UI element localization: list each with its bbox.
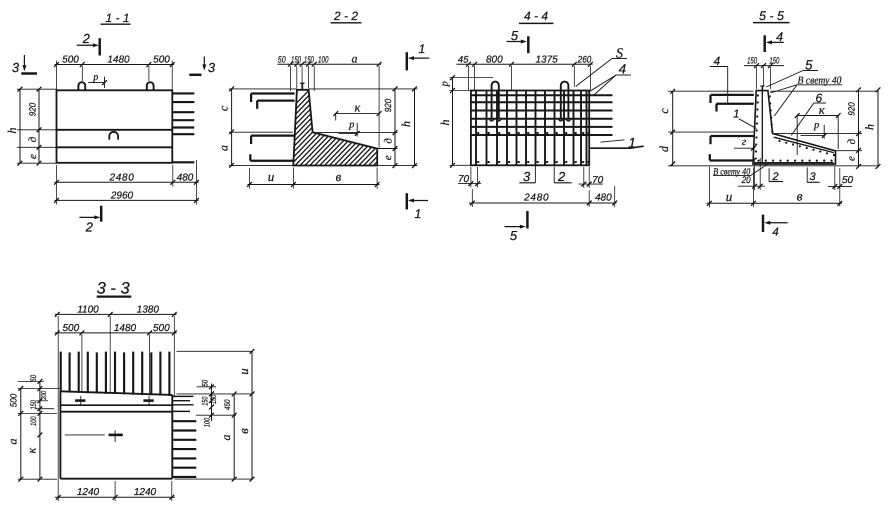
svg-text:480: 480 (595, 193, 612, 204)
svg-text:3: 3 (523, 169, 531, 184)
svg-text:150: 150 (769, 56, 779, 66)
svg-text:100: 100 (29, 416, 38, 426)
svg-text:500: 500 (153, 323, 170, 334)
svg-text:50: 50 (201, 379, 210, 386)
svg-text:к: к (25, 447, 39, 453)
svg-text:2960: 2960 (110, 191, 134, 202)
svg-text:c: c (657, 108, 671, 114)
svg-text:20: 20 (741, 175, 751, 186)
svg-text:в: в (236, 428, 251, 434)
svg-text:д: д (27, 136, 39, 142)
svg-text:S: S (616, 47, 623, 62)
svg-text:500: 500 (9, 394, 19, 408)
svg-text:2480: 2480 (108, 172, 134, 183)
svg-text:d: d (657, 145, 671, 152)
svg-text:2: 2 (85, 220, 94, 235)
svg-text:c: c (217, 105, 231, 111)
svg-text:a: a (5, 439, 19, 445)
svg-text:и: и (236, 368, 251, 375)
svg-text:200: 200 (39, 391, 48, 401)
svg-text:920: 920 (28, 103, 38, 117)
svg-text:260: 260 (577, 55, 592, 66)
svg-text:1100: 1100 (77, 304, 99, 315)
svg-text:2480: 2480 (523, 193, 549, 204)
svg-text:е: е (845, 156, 857, 161)
svg-text:1375: 1375 (535, 55, 558, 66)
svg-text:50: 50 (278, 54, 286, 64)
svg-text:1480: 1480 (114, 323, 137, 334)
svg-text:1: 1 (628, 134, 636, 150)
svg-text:е: е (27, 154, 39, 159)
svg-text:h: h (862, 124, 876, 130)
svg-text:450: 450 (223, 399, 232, 410)
svg-text:3: 3 (208, 60, 216, 75)
svg-text:2: 2 (82, 31, 91, 46)
svg-text:1: 1 (733, 108, 739, 120)
svg-text:4: 4 (772, 227, 778, 239)
svg-text:1240: 1240 (134, 487, 157, 498)
svg-text:500: 500 (62, 323, 79, 334)
svg-text:в: в (336, 169, 342, 184)
svg-text:1480: 1480 (107, 55, 130, 66)
svg-text:д: д (383, 138, 395, 144)
svg-text:5: 5 (511, 28, 519, 43)
svg-text:920: 920 (383, 99, 393, 113)
svg-text:и: и (726, 189, 733, 204)
svg-text:50: 50 (29, 374, 38, 381)
svg-text:150: 150 (29, 400, 38, 410)
svg-text:500: 500 (62, 55, 79, 66)
svg-text:г: г (742, 136, 747, 148)
svg-text:h: h (438, 120, 452, 126)
svg-text:р: р (348, 120, 354, 131)
svg-text:150: 150 (304, 54, 314, 64)
svg-text:4: 4 (619, 62, 627, 77)
svg-text:5: 5 (510, 228, 518, 243)
svg-text:р: р (813, 120, 819, 131)
svg-text:150: 150 (209, 394, 218, 404)
svg-text:1380: 1380 (137, 304, 160, 315)
svg-text:д: д (846, 138, 858, 144)
svg-text:1 - 1: 1 - 1 (105, 11, 129, 25)
svg-text:2: 2 (557, 169, 566, 184)
svg-text:a: a (217, 145, 231, 151)
svg-text:3: 3 (12, 60, 20, 75)
svg-text:в: в (797, 188, 803, 203)
svg-text:50: 50 (842, 175, 854, 186)
svg-text:и: и (268, 169, 275, 184)
svg-text:480: 480 (177, 172, 194, 183)
svg-text:150: 150 (747, 56, 757, 66)
svg-text:1240: 1240 (77, 487, 100, 498)
svg-text:150: 150 (291, 54, 301, 64)
svg-text:800: 800 (486, 55, 503, 66)
svg-text:р: р (92, 72, 98, 83)
svg-text:4: 4 (714, 54, 721, 68)
svg-text:1: 1 (414, 207, 421, 221)
svg-text:a: a (352, 51, 358, 65)
svg-text:3: 3 (810, 171, 817, 183)
svg-text:3 - 3: 3 - 3 (97, 280, 131, 298)
svg-text:h: h (399, 121, 413, 127)
svg-text:a: a (219, 435, 233, 441)
svg-text:920: 920 (846, 102, 856, 116)
svg-text:к: к (354, 100, 360, 114)
svg-text:р: р (439, 81, 450, 87)
svg-text:45: 45 (458, 55, 469, 66)
svg-text:100: 100 (203, 417, 212, 427)
svg-text:h: h (5, 128, 19, 134)
svg-text:2 - 2: 2 - 2 (333, 9, 358, 23)
svg-text:е: е (382, 155, 394, 160)
svg-text:500: 500 (153, 55, 170, 66)
svg-text:5 - 5: 5 - 5 (759, 9, 784, 23)
svg-text:к: к (819, 103, 825, 117)
svg-text:100: 100 (318, 54, 329, 64)
svg-text:1: 1 (418, 42, 425, 56)
svg-text:4 - 4: 4 - 4 (524, 9, 548, 23)
